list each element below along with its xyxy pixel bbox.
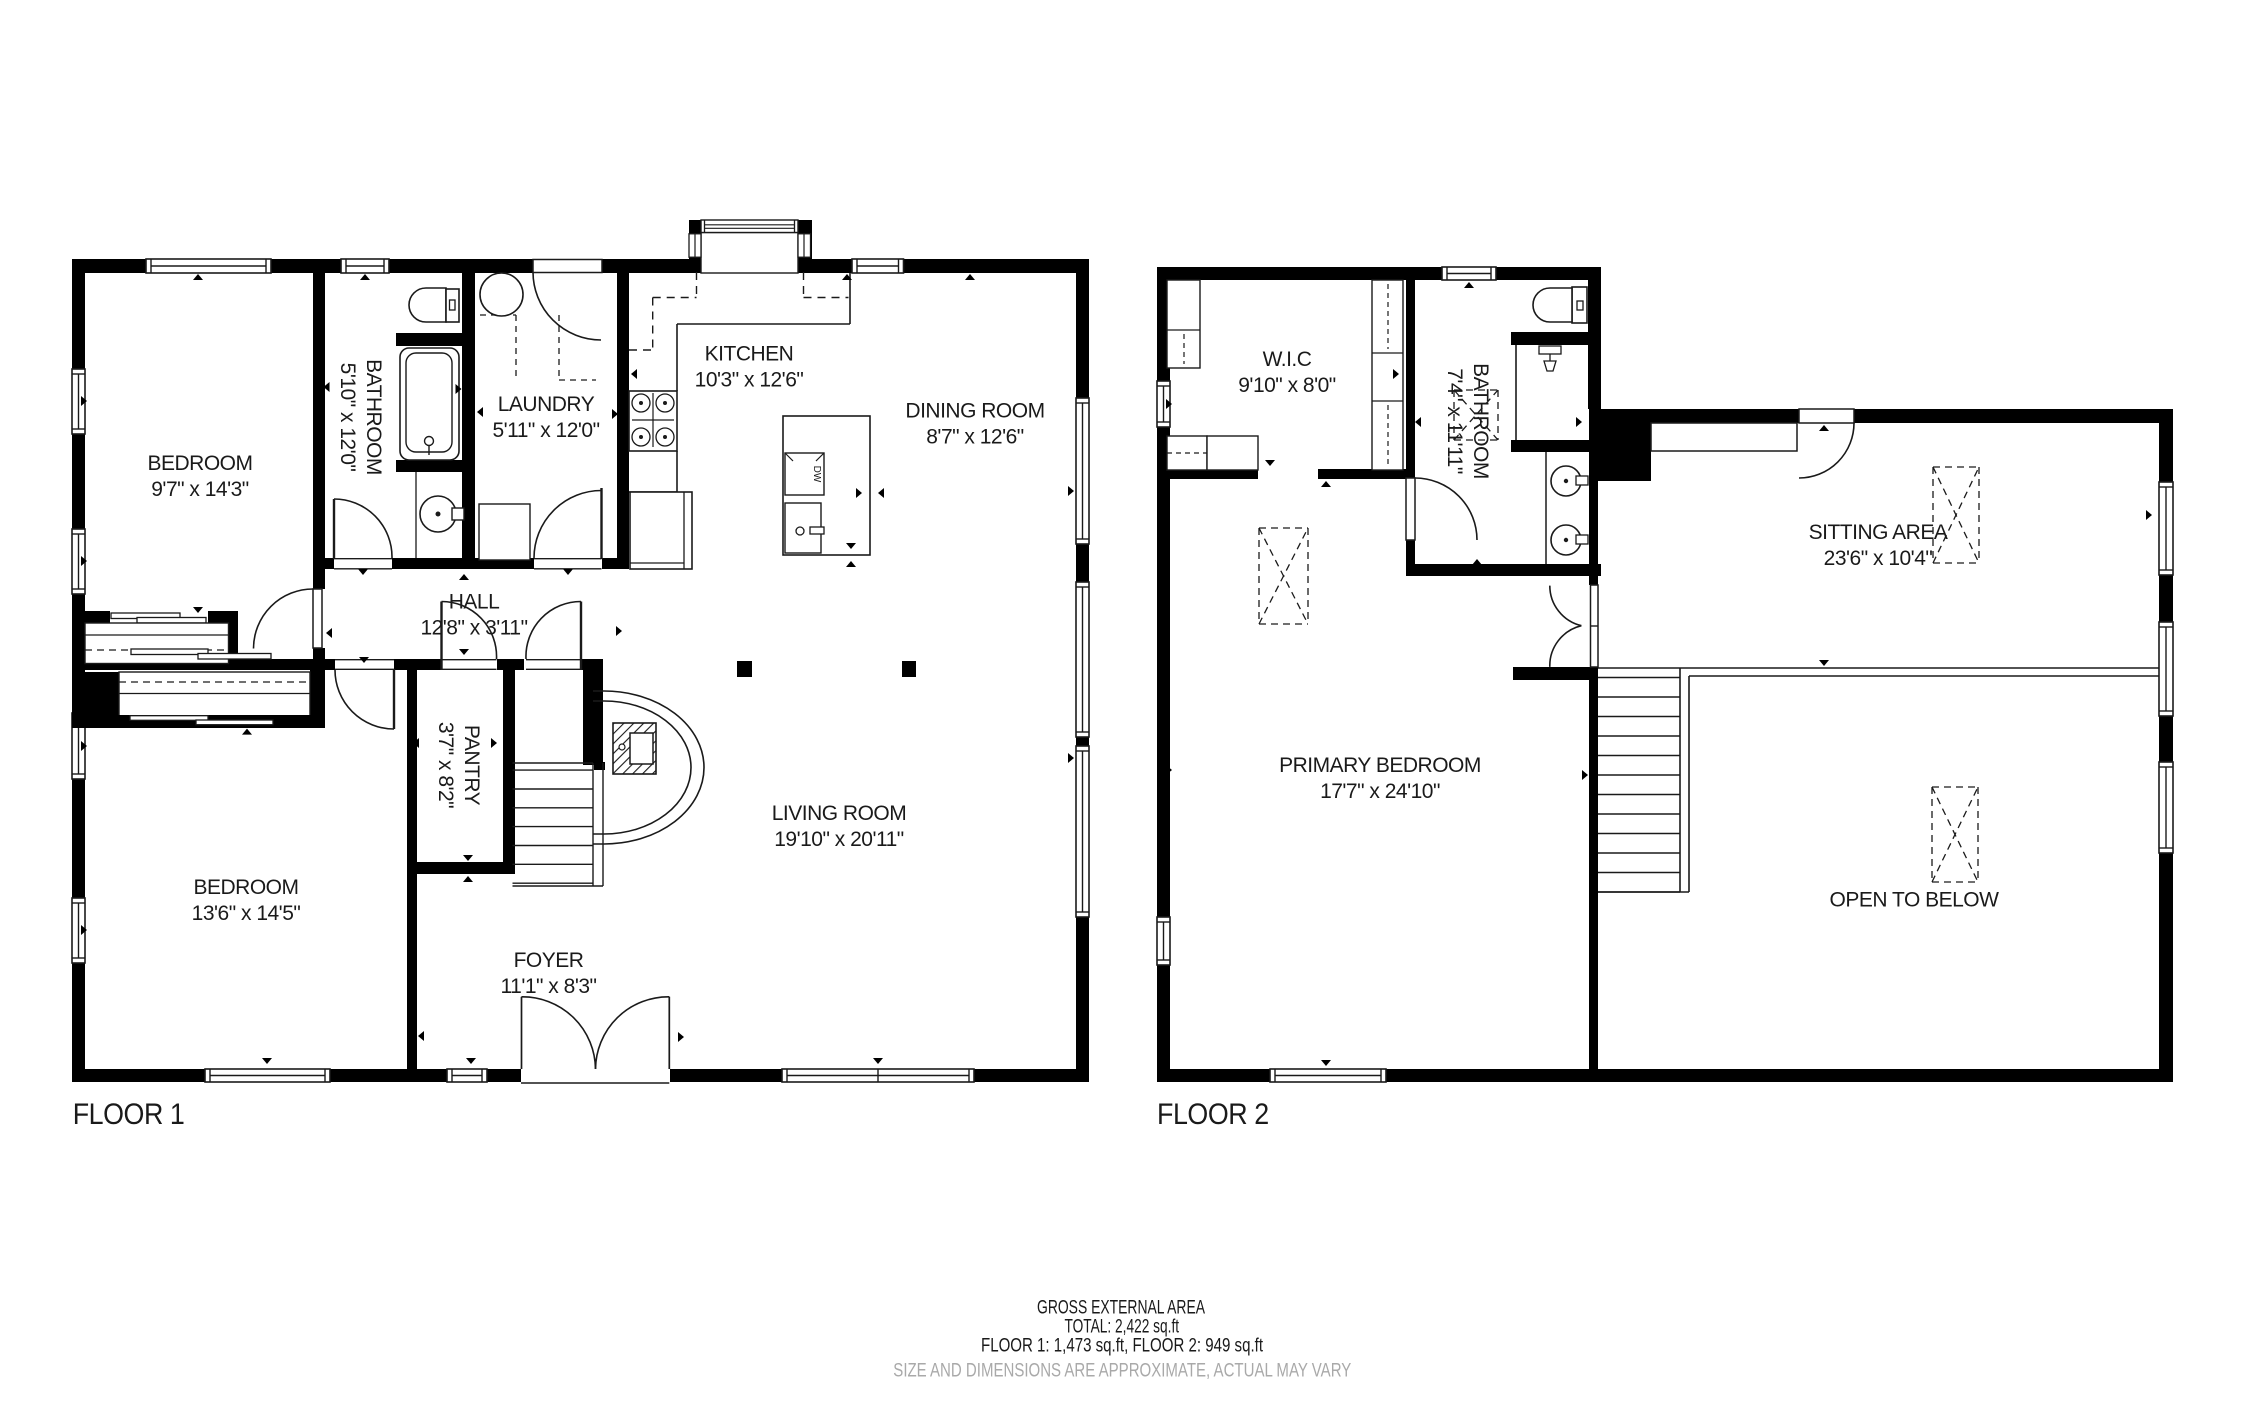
svg-text:7'4" x 11'11": 7'4" x 11'11" xyxy=(1443,368,1466,474)
svg-text:LAUNDRY: LAUNDRY xyxy=(498,393,595,416)
svg-text:FLOOR 1: 1,473 sq.ft, FLOOR 2:: FLOOR 1: 1,473 sq.ft, FLOOR 2: 949 sq.ft xyxy=(981,1335,1263,1357)
svg-text:13'6" x 14'5": 13'6" x 14'5" xyxy=(192,902,301,925)
svg-text:BEDROOM: BEDROOM xyxy=(193,876,298,899)
svg-text:17'7" x 24'10": 17'7" x 24'10" xyxy=(1320,780,1440,803)
svg-text:DW: DW xyxy=(811,466,822,483)
svg-text:FLOOR 1: FLOOR 1 xyxy=(73,1098,185,1131)
svg-text:DINING ROOM: DINING ROOM xyxy=(905,399,1044,422)
svg-text:12'8" x 3'11": 12'8" x 3'11" xyxy=(420,617,527,640)
svg-text:9'10" x 8'0": 9'10" x 8'0" xyxy=(1238,374,1336,397)
svg-text:23'6" x 10'4": 23'6" x 10'4" xyxy=(1824,547,1933,570)
svg-text:SIZE AND DIMENSIONS ARE APPROX: SIZE AND DIMENSIONS ARE APPROXIMATE, ACT… xyxy=(893,1360,1351,1382)
svg-text:PANTRY: PANTRY xyxy=(460,725,483,806)
svg-text:5'11" x 12'0": 5'11" x 12'0" xyxy=(492,419,599,442)
svg-text:OPEN TO BELOW: OPEN TO BELOW xyxy=(1830,889,2000,912)
svg-text:9'7" x 14'3": 9'7" x 14'3" xyxy=(151,478,249,501)
svg-text:SITTING AREA: SITTING AREA xyxy=(1809,521,1948,544)
svg-text:11'1" x 8'3": 11'1" x 8'3" xyxy=(501,975,597,998)
svg-text:BATHROOM: BATHROOM xyxy=(362,359,385,475)
svg-text:BATHROOM: BATHROOM xyxy=(1469,363,1492,479)
svg-text:HALL: HALL xyxy=(449,591,500,614)
svg-text:PRIMARY BEDROOM: PRIMARY BEDROOM xyxy=(1279,754,1481,777)
svg-text:W.I.C: W.I.C xyxy=(1263,348,1312,371)
svg-text:5'10" x 12'0": 5'10" x 12'0" xyxy=(336,363,359,472)
svg-text:FOYER: FOYER xyxy=(514,949,584,972)
svg-text:BEDROOM: BEDROOM xyxy=(147,452,252,475)
svg-text:10'3" x 12'6": 10'3" x 12'6" xyxy=(695,369,804,392)
svg-text:KITCHEN: KITCHEN xyxy=(705,343,794,366)
svg-text:8'7" x 12'6": 8'7" x 12'6" xyxy=(926,425,1024,448)
svg-text:19'10" x 20'11": 19'10" x 20'11" xyxy=(774,828,904,851)
svg-text:LIVING ROOM: LIVING ROOM xyxy=(772,802,907,825)
svg-text:FLOOR 2: FLOOR 2 xyxy=(1157,1098,1269,1131)
svg-text:3'7" x 8'2": 3'7" x 8'2" xyxy=(434,722,457,808)
